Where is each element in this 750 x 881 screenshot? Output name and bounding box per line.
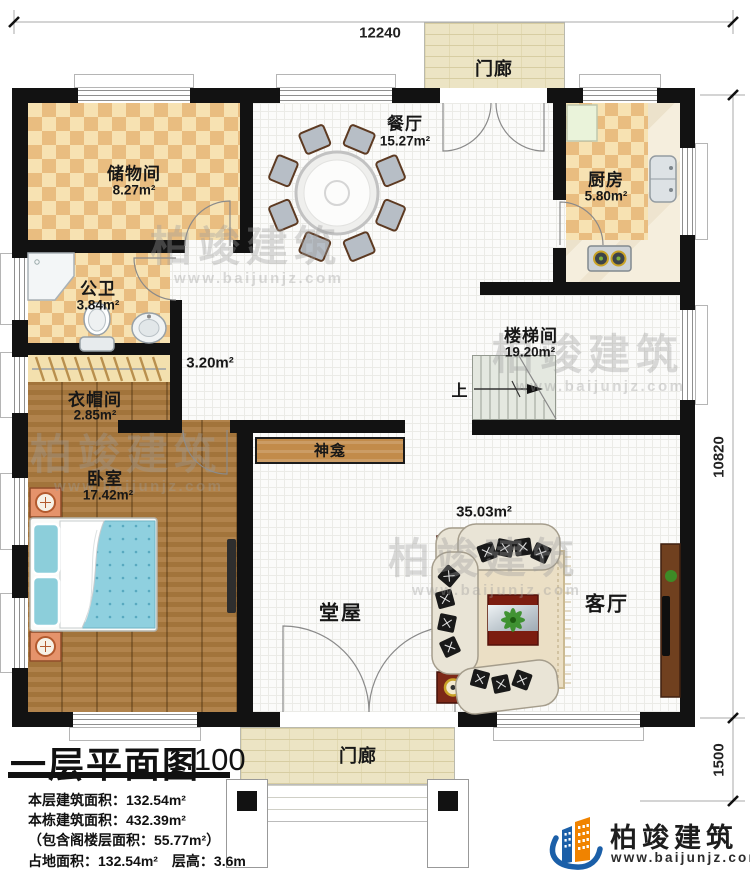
door-opening-top-porch: [440, 88, 547, 103]
wall-corridor-left: [170, 300, 182, 422]
wall-storage-bottom-left: [12, 240, 185, 253]
shrine-label: 神龛: [314, 440, 346, 461]
sill-living-bottom: [493, 727, 644, 741]
wall-shrine: [230, 420, 405, 433]
window-stairwell-right: [680, 310, 695, 400]
stat-attic-area: （包含阁楼层面积：55.77m²）: [28, 830, 220, 850]
sill-stairwell-right: [695, 305, 708, 405]
window-living-bottom: [497, 712, 640, 727]
dining-area: 15.27m²: [380, 134, 430, 149]
wall-stairwell-bottom: [472, 420, 680, 435]
window-storage-top: [78, 88, 190, 103]
logo-website: www.baijunjz.com: [611, 850, 750, 865]
wall-kitchen-left-upper: [553, 88, 566, 200]
cloakroom-area: 2.85m²: [74, 408, 117, 423]
window-bedroom-left-1: [12, 478, 28, 545]
porch-column-right-core: [438, 791, 458, 811]
window-bathroom-left: [12, 258, 28, 320]
porch-top-label: 门廊: [475, 55, 513, 81]
window-kitchen-top: [583, 88, 657, 103]
wall-storage-dining: [240, 88, 253, 240]
stat-footprint-height: 占地面积：132.54m² 层高：3.6m: [28, 851, 246, 871]
hall-label: 堂屋: [319, 597, 363, 626]
window-bedroom-left-2: [12, 598, 28, 668]
window-cloakroom-left: [12, 357, 28, 413]
bathroom-area: 3.84m²: [77, 298, 120, 313]
wall-storage-bottom-right: [233, 240, 253, 253]
dimension-bottom-right: 1500: [711, 743, 728, 776]
bedroom-area: 17.42m²: [83, 488, 133, 503]
door-opening-bottom-porch: [280, 712, 458, 727]
stat-building-area: 本栋建筑面积：432.39m²: [28, 810, 186, 830]
sill-kitchen-right: [695, 143, 708, 240]
window-kitchen-right: [680, 148, 695, 235]
sill-dining: [276, 74, 396, 88]
bedroom-label: 卧室: [87, 465, 123, 490]
kitchen-label: 厨房: [588, 166, 624, 191]
dimension-top: 12240: [359, 25, 401, 42]
stat-floor-area: 本层建筑面积：132.54m²: [28, 790, 186, 810]
staircase: [472, 355, 556, 420]
dining-label: 餐厅: [387, 110, 423, 135]
wall-stairwell-top: [480, 282, 680, 295]
window-dining-top: [280, 88, 392, 103]
cloakroom-rack: [28, 355, 170, 382]
floor-plan-canvas: 柏竣建筑 www.baijunjz.com 柏竣建筑 www.baijunjz.…: [0, 0, 750, 881]
bathroom-label: 公卫: [80, 275, 116, 300]
logo-mark: [553, 817, 600, 867]
bedroom-floor: [28, 420, 237, 712]
stairs-up-label: 上: [451, 377, 468, 401]
kitchen-counter-right: [648, 103, 680, 295]
porch-bottom-steps: [240, 784, 455, 822]
storage-area: 8.27m²: [113, 183, 156, 198]
corridor-area: 3.20m²: [186, 355, 234, 372]
stairwell-label: 楼梯间: [504, 322, 558, 347]
wall-cloakroom-bedroom: [118, 420, 182, 433]
title-underline: [8, 772, 230, 778]
hall-area: 35.03m²: [456, 504, 512, 521]
wall-bathroom-bottom: [12, 343, 170, 355]
sill-kitchen-top: [579, 74, 661, 88]
kitchen-area: 5.80m²: [585, 189, 628, 204]
stairwell-area: 19.20m²: [505, 345, 555, 360]
dimension-right: 10820: [711, 436, 728, 478]
living-label: 客厅: [585, 588, 629, 617]
storage-label: 储物间: [107, 160, 161, 185]
porch-bottom-label: 门廊: [339, 742, 377, 768]
sill-storage: [74, 74, 194, 88]
wall-bedroom-hall: [237, 433, 253, 712]
porch-column-left-core: [237, 791, 257, 811]
window-bedroom-bottom: [73, 712, 197, 727]
